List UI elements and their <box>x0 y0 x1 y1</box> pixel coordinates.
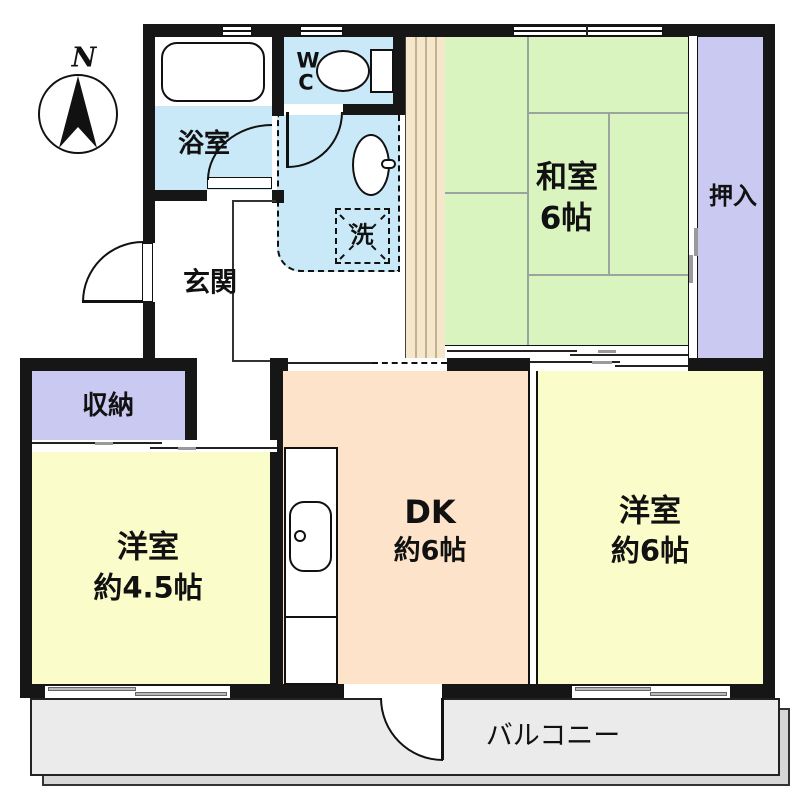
north-arrow-icon <box>38 74 118 154</box>
western-large-sliding-tick <box>592 361 612 364</box>
western-small-window <box>45 686 230 698</box>
western-large-window <box>572 686 730 698</box>
tatami-line <box>527 274 688 276</box>
wall-bath-bottom <box>143 190 207 201</box>
wall-dk-left <box>270 358 283 688</box>
washitsu-fusuma-tick <box>598 350 616 353</box>
kitchen-faucet-symbol <box>294 530 306 542</box>
partition-dk-western <box>528 371 538 684</box>
wall-oshiire-bottom <box>688 358 775 371</box>
dk-sliding-door-line <box>288 362 372 364</box>
bath-window <box>222 26 252 36</box>
washitsu-window <box>513 26 663 36</box>
tatami-line <box>445 192 527 194</box>
label-dk-size: 約6帖 <box>394 538 467 565</box>
genkan-step-line <box>232 360 270 362</box>
wood-strip-line <box>425 36 427 358</box>
fusuma-oshiire <box>688 36 698 358</box>
label-western-large: 洋室 <box>619 497 681 528</box>
label-washitsu-size: 6帖 <box>540 204 593 235</box>
room-western-small <box>32 452 277 687</box>
dk-sliding-door <box>288 358 447 371</box>
wall-storage-top <box>20 358 197 371</box>
wc-window <box>300 26 343 36</box>
wall-bath-wc-divider <box>272 36 284 116</box>
washbasin-handle-symbol <box>381 159 396 169</box>
label-wc-line1: W <box>296 51 319 72</box>
wall-mid-center <box>447 358 530 371</box>
label-washitsu: 和室 <box>536 163 598 194</box>
storage-sliding-tick <box>178 447 196 450</box>
genkan-step-line <box>232 200 276 202</box>
label-balcony: バルコニー <box>486 723 620 750</box>
balcony-door-leaf <box>441 698 444 760</box>
wall-left-lower <box>20 358 32 698</box>
wall-storage-right <box>185 358 197 450</box>
label-bath: 浴室 <box>178 131 230 157</box>
compass <box>38 74 118 154</box>
label-dk: DK <box>404 496 455 528</box>
kitchen-counter-divider <box>284 616 338 618</box>
dk-sliding-door-dashed <box>372 362 447 364</box>
washitsu-window-tick <box>586 25 588 37</box>
tatami-line <box>527 36 529 345</box>
label-western-small-size: 約4.5帖 <box>93 574 202 603</box>
western-large-sliding-line <box>615 365 688 367</box>
storage-sliding-tick <box>95 442 113 445</box>
washitsu-fusuma-line <box>447 350 577 352</box>
entry-door-leaf <box>142 243 153 302</box>
toilet-bowl-symbol <box>316 50 370 92</box>
label-western-large-size: 約6帖 <box>611 537 689 566</box>
label-wc-line2: C <box>298 73 313 94</box>
balcony-door-opening <box>343 684 443 698</box>
wall-wc-bottom <box>343 104 405 115</box>
label-genkan: 玄関 <box>183 270 237 297</box>
label-laundry: 洗 <box>351 225 374 248</box>
wood-strip-line <box>435 36 437 358</box>
label-western-small: 洋室 <box>117 533 179 564</box>
washitsu-fusuma-line <box>570 354 688 356</box>
entry-door-arc <box>82 241 143 302</box>
storage-sliding-line <box>150 447 277 449</box>
fusuma-tick <box>689 255 693 283</box>
label-storage: 収納 <box>82 393 134 419</box>
tatami-line <box>608 112 610 276</box>
wood-strip-line <box>415 36 417 358</box>
bathtub-symbol <box>161 42 265 102</box>
toilet-tank-symbol <box>370 49 394 93</box>
floor-plan: N 浴室 W C 洗 玄関 収納 和室 6帖 押入 DK 約6帖 洋室 約4.5… <box>0 0 804 807</box>
fusuma-tick <box>694 228 698 256</box>
compass-north-label: N <box>72 45 97 72</box>
label-oshiire: 押入 <box>709 184 757 208</box>
